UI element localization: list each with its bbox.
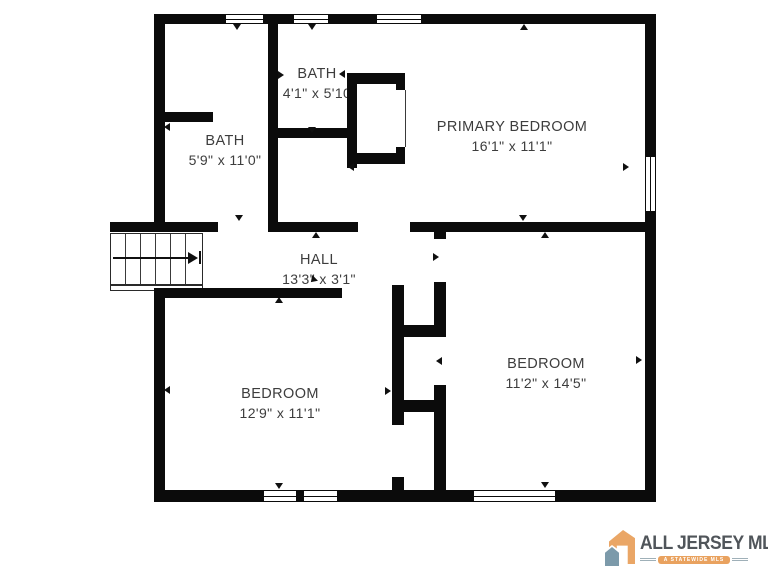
window-icon [303, 490, 338, 502]
window-cap [221, 14, 226, 24]
opening-marker-icon [164, 123, 170, 131]
opening-marker-icon [312, 232, 320, 238]
wall-hall-right-stub [434, 232, 446, 239]
stair-tread [125, 234, 126, 284]
floor-plan-canvas: BATH 4'1" x 5'10 BATH 5'9" x 11'0" PRIMA… [0, 0, 768, 576]
opening-marker-icon [348, 163, 354, 171]
opening-marker-icon [520, 24, 528, 30]
room-dimensions: 12'9" x 11'1" [240, 404, 321, 423]
logo-title: ALL JERSEY MLS [640, 533, 768, 555]
room-name: HALL [282, 251, 356, 270]
window-cap [337, 490, 343, 502]
wall-hall-top-1 [110, 222, 218, 232]
stair-direction-line [113, 257, 190, 259]
room-label-primary-bedroom: PRIMARY BEDROOM 16'1" x 11'1" [437, 118, 588, 156]
tagline-rule-right [732, 558, 748, 561]
stair-arrow-icon [188, 252, 198, 264]
stair-tread [170, 234, 171, 284]
tagline-rule-left [640, 558, 656, 561]
window-cap [421, 14, 428, 24]
door-marker-icon [433, 253, 439, 261]
wall-hall-bottom [154, 288, 342, 298]
window-icon [263, 490, 297, 502]
window-cap [328, 14, 333, 24]
room-label-bath-left: BATH 5'9" x 11'0" [189, 132, 262, 170]
wall-closet-column-stub [392, 477, 404, 492]
wall-bath-top-right [347, 73, 357, 168]
opening-marker-icon [541, 482, 549, 488]
opening-marker-icon [164, 386, 170, 394]
room-dimensions: 13'3" x 3'1" [282, 270, 356, 289]
window-cap [645, 211, 656, 217]
window-cap [555, 490, 562, 502]
door-marker-icon [436, 357, 442, 365]
logo-tagline-row: A STATEWIDE MLS [640, 556, 748, 564]
room-name: BATH [189, 132, 262, 151]
room-name: BEDROOM [240, 385, 321, 404]
window-cap [258, 490, 264, 502]
window-cap [263, 14, 268, 24]
opening-marker-icon [519, 215, 527, 221]
opening-marker-icon [233, 24, 241, 30]
house-icon [604, 529, 636, 567]
opening-marker-icon [275, 483, 283, 489]
wall-exterior-bottom [154, 490, 656, 502]
stair-tread [185, 234, 186, 284]
opening-marker-icon [541, 232, 549, 238]
room-label-bedroom-left: BEDROOM 12'9" x 11'1" [240, 385, 321, 423]
opening-marker-icon [308, 127, 316, 133]
room-label-bedroom-right: BEDROOM 11'2" x 14'5" [506, 355, 587, 393]
window-cap [467, 490, 474, 502]
wall-exterior-right [645, 14, 656, 502]
room-dimensions: 16'1" x 11'1" [437, 137, 588, 156]
wall-exterior-left-upper [154, 14, 165, 223]
window-cap [645, 151, 656, 157]
mls-logo: ALL JERSEY MLS A STATEWIDE MLS [604, 526, 764, 570]
wall-closet-divider-1 [404, 325, 442, 337]
stair-tread [155, 234, 156, 284]
wall-closet-top-cap [396, 73, 405, 90]
wall-closet-bottom-cap [396, 147, 405, 164]
door-marker-icon [235, 215, 243, 221]
wall-exterior-left-lower [154, 290, 165, 502]
room-name: BEDROOM [506, 355, 587, 374]
logo-tagline: A STATEWIDE MLS [658, 556, 730, 564]
opening-marker-icon [623, 163, 629, 171]
wall-bath-divider-vertical [268, 14, 278, 232]
room-dimensions: 4'1" x 5'10 [283, 84, 351, 103]
wall-closet-divider-2 [404, 400, 442, 412]
opening-marker-icon [339, 70, 345, 78]
door-marker-icon [385, 387, 391, 395]
room-dimensions: 11'2" x 14'5" [506, 374, 587, 393]
window-icon [473, 490, 556, 502]
window-icon [293, 14, 329, 24]
opening-marker-icon [308, 24, 316, 30]
stair-arrow-tick [199, 251, 201, 264]
opening-marker-icon [636, 356, 642, 364]
wall-bath-left-stub [165, 112, 213, 122]
stair-tread [140, 234, 141, 284]
room-dimensions: 5'9" x 11'0" [189, 151, 262, 170]
window-icon [376, 14, 422, 24]
window-icon [225, 14, 264, 24]
wall-closet-column-left [392, 285, 404, 425]
window-cap [289, 14, 294, 24]
window-cap [371, 14, 377, 24]
wall-hall-top-3 [410, 222, 645, 232]
room-label-hall: HALL 13'3" x 3'1" [282, 251, 356, 289]
window-mullion [296, 490, 304, 502]
wall-hall-top-2 [268, 222, 358, 232]
closet-door-line [405, 90, 406, 147]
opening-marker-icon [278, 71, 284, 79]
logo-text-column: ALL JERSEY MLS A STATEWIDE MLS [640, 533, 768, 564]
door-marker-icon [275, 297, 283, 303]
room-name: PRIMARY BEDROOM [437, 118, 588, 137]
window-icon [645, 156, 656, 212]
